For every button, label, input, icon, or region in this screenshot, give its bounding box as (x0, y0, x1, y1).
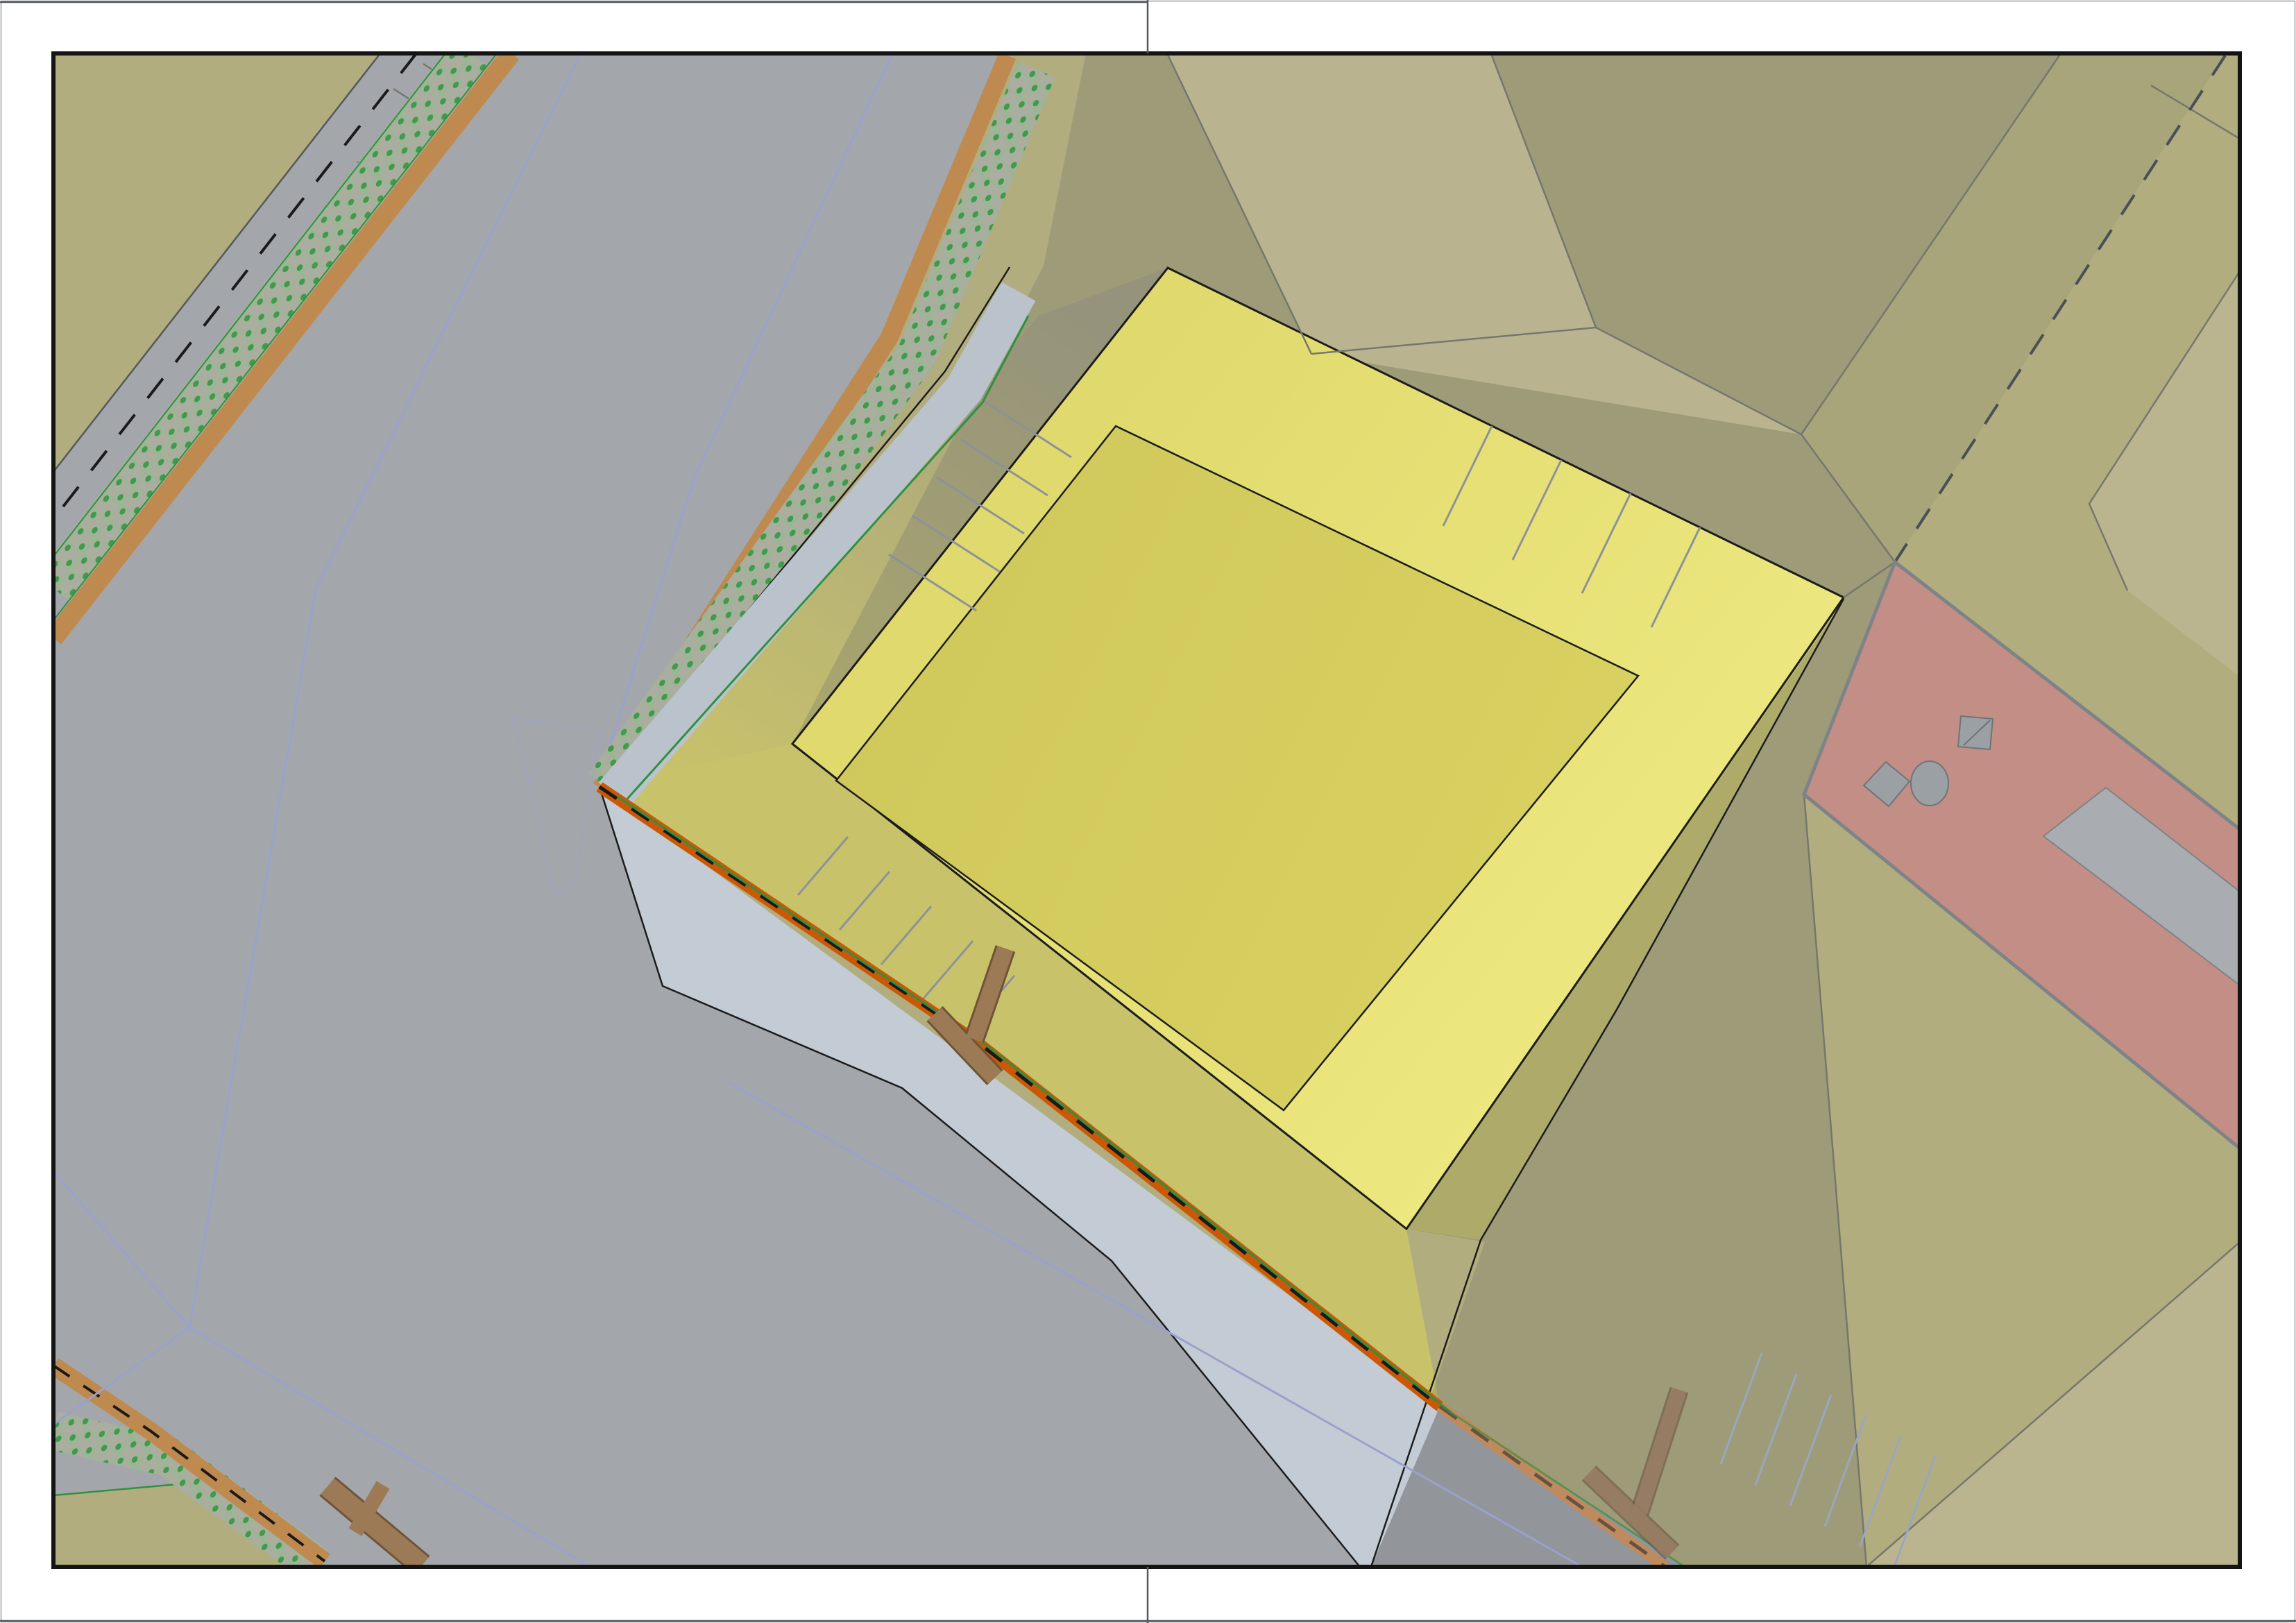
roof-symbol-circle (1911, 761, 1948, 806)
map-viewport[interactable] (0, 0, 2296, 1623)
map-content[interactable] (53, 53, 2240, 1567)
plan-sheet (0, 0, 2296, 1623)
roof-symbol-square (1958, 716, 1993, 749)
